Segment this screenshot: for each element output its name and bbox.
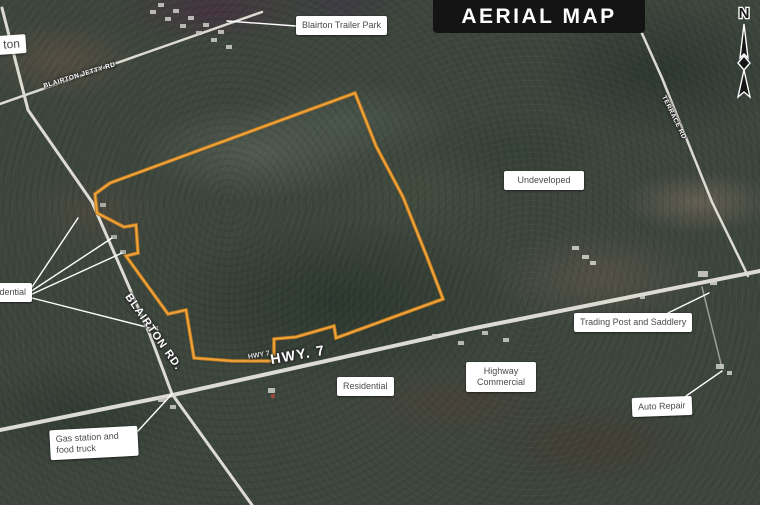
leader-residential-1 (30, 218, 78, 290)
label-undeveloped: Undeveloped (504, 171, 584, 190)
label-highway-commercial: Highway Commercial (466, 362, 536, 392)
leader-residential-3 (30, 253, 122, 295)
label-trading-post: Trading Post and Saddlery (574, 313, 692, 332)
building-markers (100, 3, 732, 409)
title-banner: AERIAL MAP (433, 0, 645, 33)
north-arrow-n: N (739, 5, 750, 22)
leader-trading-post (668, 293, 709, 313)
leader-residential-2 (30, 238, 112, 292)
road-terrace-rd (627, 0, 748, 276)
leader-trailer-park (227, 21, 296, 26)
page-title: AERIAL MAP (461, 5, 616, 29)
label-auto-repair: Auto Repair (632, 396, 692, 417)
north-arrow: N (738, 5, 750, 97)
label-blairton-trailer-park: Blairton Trailer Park (296, 16, 387, 35)
aerial-map: N AERIAL MAP HWY. 7 HWY 7 BLAIRTON RD. B… (0, 0, 760, 505)
road-auto-repair-driveway (702, 287, 722, 368)
leader-auto-repair (686, 371, 722, 396)
north-arrow-needle (738, 24, 750, 97)
road-blairton-jetty-rd (0, 12, 262, 104)
label-residential-partial: dential (0, 283, 32, 302)
label-residential: Residential (337, 377, 394, 396)
label-gas-station: Gas station and food truck (49, 426, 138, 461)
